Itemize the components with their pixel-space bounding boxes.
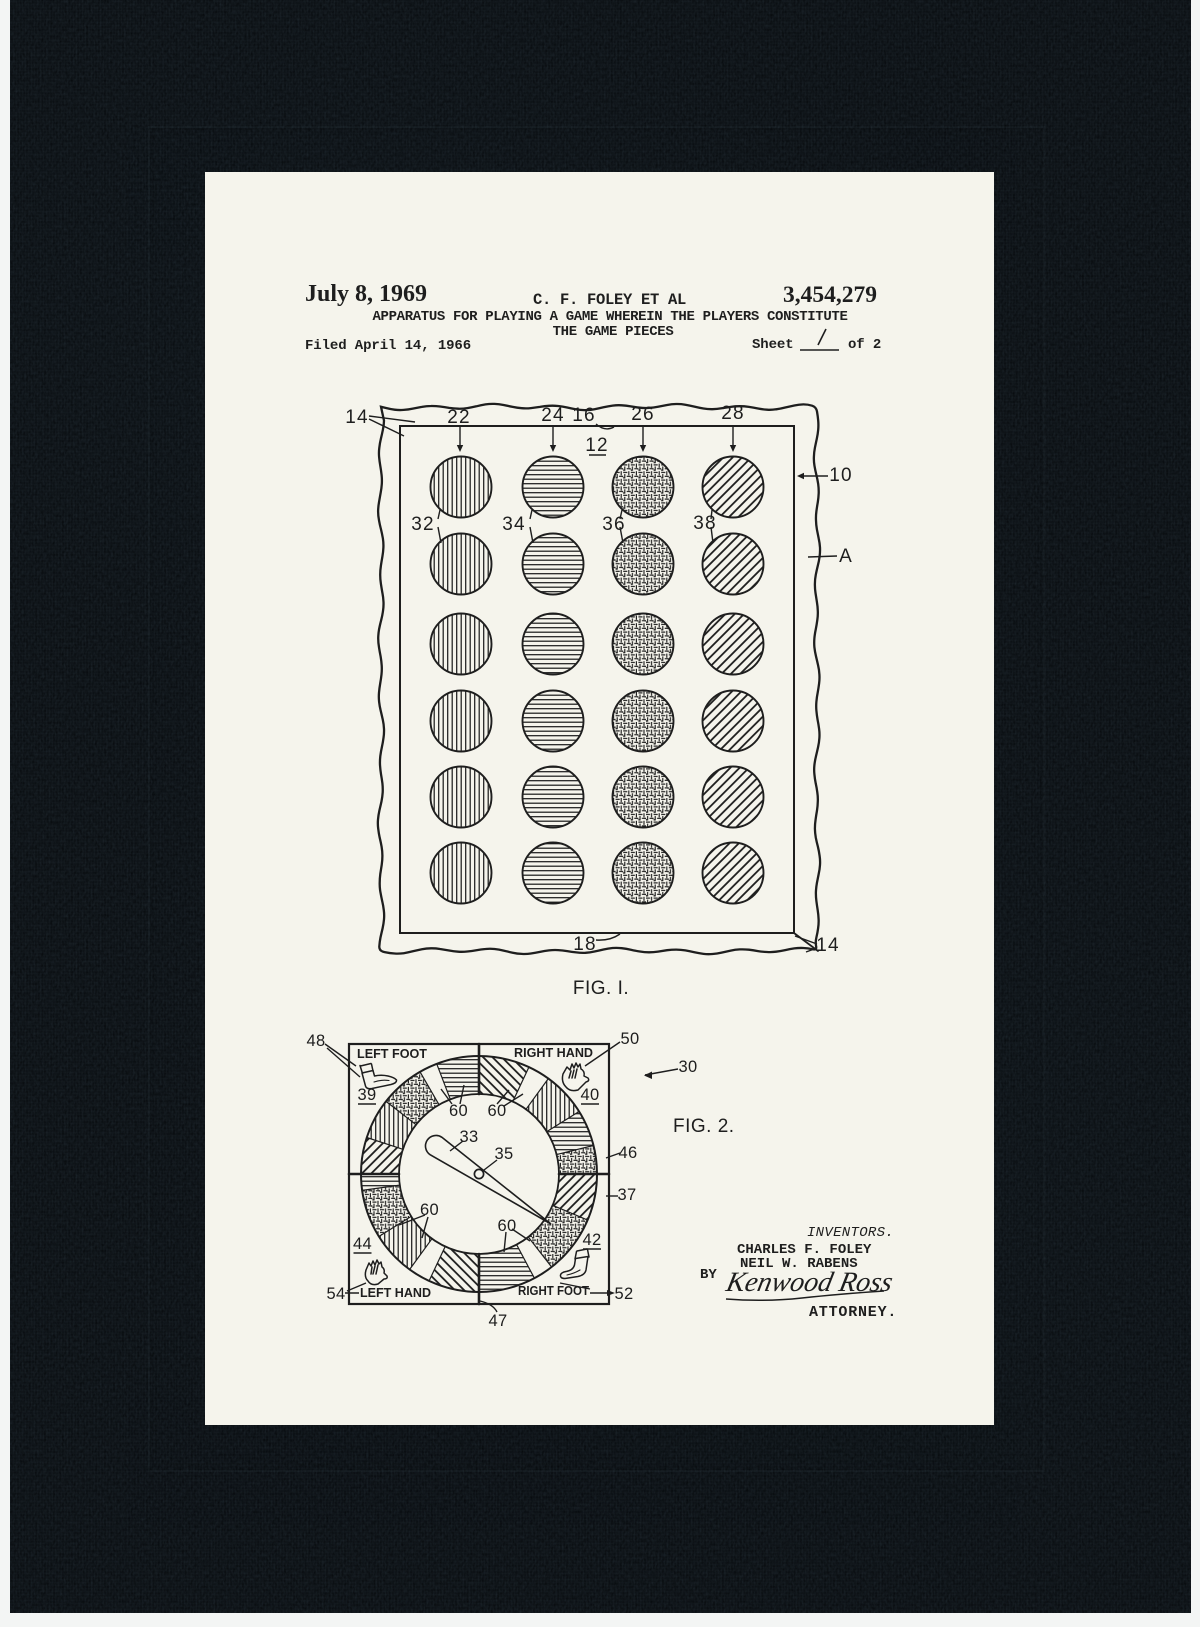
svg-text:38: 38 bbox=[693, 513, 717, 534]
svg-text:28: 28 bbox=[721, 403, 745, 424]
svg-text:47: 47 bbox=[489, 1312, 508, 1330]
svg-text:37: 37 bbox=[618, 1186, 637, 1204]
svg-text:LEFT HAND: LEFT HAND bbox=[360, 1286, 431, 1300]
svg-text:of 2: of 2 bbox=[848, 337, 881, 353]
svg-text:FIG. 2.: FIG. 2. bbox=[673, 1116, 735, 1137]
svg-text:34: 34 bbox=[502, 514, 526, 535]
svg-text:BY: BY bbox=[700, 1267, 717, 1283]
svg-text:10: 10 bbox=[829, 465, 853, 486]
svg-text:INVENTORS.: INVENTORS. bbox=[807, 1225, 894, 1241]
svg-text:18: 18 bbox=[573, 934, 597, 955]
svg-text:14: 14 bbox=[345, 407, 369, 428]
svg-text:44: 44 bbox=[353, 1235, 372, 1253]
svg-text:54: 54 bbox=[327, 1285, 346, 1303]
svg-text:THE GAME PIECES: THE GAME PIECES bbox=[553, 324, 674, 340]
svg-text:C. F. FOLEY ET AL: C. F. FOLEY ET AL bbox=[533, 291, 686, 309]
svg-text:Sheet: Sheet bbox=[752, 337, 794, 353]
svg-text:26: 26 bbox=[631, 404, 655, 425]
svg-text:RIGHT FOOT: RIGHT FOOT bbox=[518, 1284, 589, 1298]
svg-text:60: 60 bbox=[420, 1201, 439, 1219]
svg-text:35: 35 bbox=[495, 1145, 514, 1163]
svg-text:32: 32 bbox=[411, 514, 435, 535]
svg-text:48: 48 bbox=[307, 1032, 326, 1050]
svg-text:24: 24 bbox=[541, 405, 565, 426]
svg-text:14: 14 bbox=[816, 935, 840, 956]
svg-text:July 8, 1969: July 8, 1969 bbox=[305, 281, 427, 307]
svg-text:APPARATUS FOR PLAYING A GAME W: APPARATUS FOR PLAYING A GAME WHEREIN THE… bbox=[372, 309, 847, 325]
svg-text:A: A bbox=[839, 546, 853, 567]
svg-text:33: 33 bbox=[460, 1128, 479, 1146]
svg-text:Kenwood Ross: Kenwood Ross bbox=[723, 1267, 896, 1298]
svg-text:50: 50 bbox=[621, 1030, 640, 1048]
svg-text:12: 12 bbox=[585, 435, 609, 456]
svg-text:Filed April 14, 1966: Filed April 14, 1966 bbox=[305, 338, 471, 354]
svg-text:42: 42 bbox=[583, 1231, 602, 1249]
svg-text:LEFT FOOT: LEFT FOOT bbox=[357, 1047, 427, 1061]
svg-text:39: 39 bbox=[358, 1086, 377, 1104]
svg-text:FIG. I.: FIG. I. bbox=[573, 978, 629, 999]
svg-text:3,454,279: 3,454,279 bbox=[783, 282, 877, 308]
svg-text:60: 60 bbox=[449, 1102, 468, 1120]
svg-text:52: 52 bbox=[615, 1285, 634, 1303]
svg-text:36: 36 bbox=[602, 514, 626, 535]
svg-text:40: 40 bbox=[581, 1086, 600, 1104]
svg-text:60: 60 bbox=[488, 1102, 507, 1120]
svg-text:60: 60 bbox=[498, 1217, 517, 1235]
svg-text:46: 46 bbox=[619, 1144, 638, 1162]
svg-text:30: 30 bbox=[679, 1058, 698, 1076]
svg-text:ATTORNEY.: ATTORNEY. bbox=[809, 1304, 897, 1321]
svg-text:RIGHT HAND: RIGHT HAND bbox=[514, 1046, 593, 1060]
svg-text:16: 16 bbox=[572, 405, 596, 426]
svg-text:22: 22 bbox=[447, 407, 471, 428]
